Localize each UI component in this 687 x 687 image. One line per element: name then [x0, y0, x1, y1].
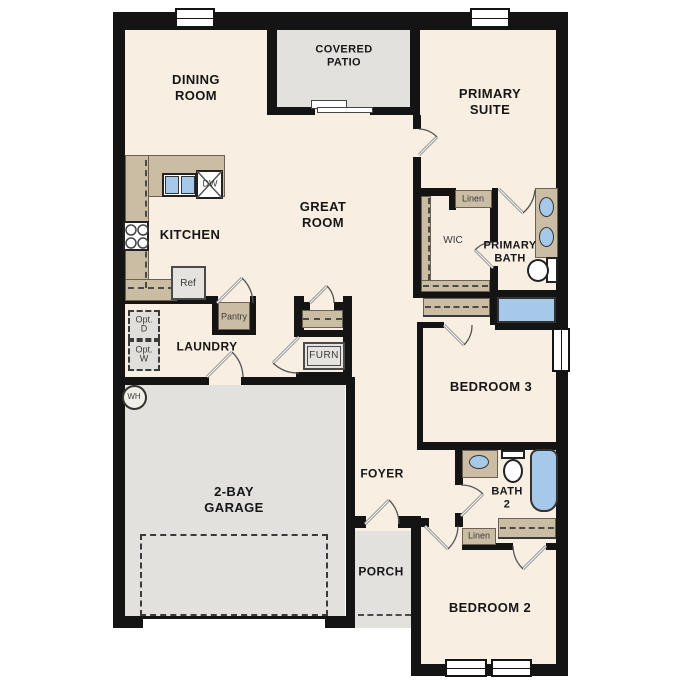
wall: [241, 377, 352, 385]
furnace-label: FURN: [309, 351, 339, 362]
bedroom3-closet-dash: [425, 306, 488, 308]
porch-label: PORCH: [358, 565, 403, 580]
cabinet-dash: [128, 287, 174, 289]
wall: [370, 107, 420, 115]
wall: [294, 330, 343, 337]
bath2-sink: [469, 455, 489, 469]
wall: [113, 616, 143, 628]
floor-plan: DININGROOM COVEREDPATIO PRIMARYSUITE GRE…: [0, 0, 687, 687]
wall: [417, 322, 423, 450]
opt-washer-label: Opt.W: [135, 346, 152, 365]
foyer-label: FOYER: [360, 467, 403, 482]
window: [552, 328, 570, 372]
wall: [490, 298, 497, 325]
bedroom3-label: BEDROOM 3: [450, 379, 532, 395]
window: [491, 659, 532, 677]
wic-label: WIC: [443, 236, 462, 247]
wall: [267, 107, 315, 115]
wall: [421, 188, 451, 196]
wall: [294, 302, 310, 310]
wall: [113, 377, 209, 385]
garage-door-opening: [143, 616, 325, 628]
dining-room-label: DININGROOM: [172, 72, 220, 104]
sink-basin: [165, 176, 179, 194]
bedroom2-closet-face: [498, 537, 556, 539]
wic-shelf-dash: [428, 198, 430, 280]
wall: [421, 518, 429, 527]
bedroom2-label: BEDROOM 2: [449, 600, 531, 616]
porch-edge-dash: [358, 614, 411, 616]
floor-hall-foyer: [346, 385, 417, 531]
patio-sliding-door: [317, 107, 373, 113]
coat-closet-dash: [303, 318, 342, 320]
wall: [346, 528, 355, 621]
garage-label: 2-BAYGARAGE: [204, 484, 263, 516]
laundry-label: LAUNDRY: [176, 340, 237, 355]
kitchen-counter-bottom: [125, 279, 177, 301]
bedroom3-closet-face: [423, 315, 490, 317]
bath2-tub: [530, 449, 558, 512]
opt-dryer-label: Opt.D: [135, 316, 152, 335]
pantry-label: Pantry: [221, 312, 247, 321]
covered-patio-label: COVEREDPATIO: [315, 44, 372, 71]
primary-tub: [497, 297, 556, 323]
refrigerator-label: Ref: [180, 279, 196, 290]
wall: [411, 664, 568, 676]
bath2-toilet-bowl: [503, 459, 523, 483]
water-heater-label: WH: [127, 393, 140, 401]
wall: [546, 543, 556, 550]
bath2-label: BATH2: [491, 486, 522, 513]
primary-sink: [539, 197, 554, 217]
window: [175, 8, 215, 28]
wall: [346, 377, 355, 528]
bedroom2-closet-dash: [500, 527, 554, 529]
wall: [455, 513, 463, 527]
dishwasher-label: DW: [203, 179, 218, 188]
bath2-toilet-tank: [501, 450, 525, 459]
kitchen-label: KITCHEN: [160, 227, 221, 243]
primary-suite-label: PRIMARYSUITE: [459, 86, 521, 118]
wall: [413, 115, 421, 129]
great-room-label: GREATROOM: [300, 199, 347, 231]
wall: [411, 516, 421, 676]
wall: [343, 296, 352, 384]
primary-sink: [539, 227, 554, 247]
sink-basin: [181, 176, 195, 194]
wall: [413, 157, 421, 296]
linen-hall-label: Linen: [468, 531, 490, 540]
linen-primary-label: Linen: [462, 194, 484, 203]
wall: [113, 12, 125, 628]
primary-bath-label: PRIMARYBATH: [483, 240, 536, 267]
wall: [410, 12, 420, 115]
wall: [267, 12, 277, 115]
window: [445, 659, 487, 677]
range-stove: [123, 221, 149, 251]
wall: [346, 516, 366, 528]
garage-door-outline: [140, 534, 328, 616]
wic-shelf-dash: [423, 285, 488, 287]
window: [470, 8, 510, 28]
